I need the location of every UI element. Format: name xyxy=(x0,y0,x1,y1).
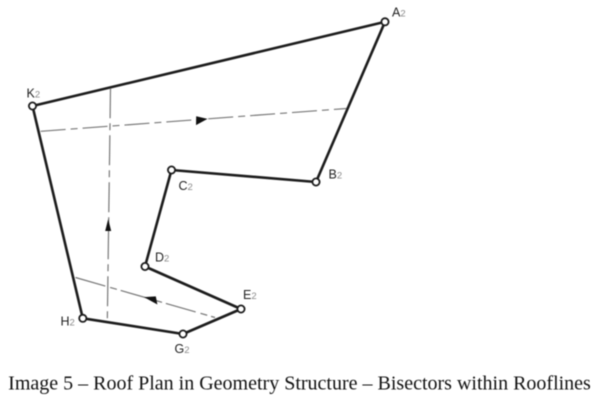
svg-text:D2: D2 xyxy=(155,251,169,265)
svg-text:G2: G2 xyxy=(175,342,190,356)
svg-text:Image 5 – Roof Plan in Geometr: Image 5 – Roof Plan in Geometry Structur… xyxy=(8,373,591,395)
svg-text:H2: H2 xyxy=(61,315,75,329)
svg-text:K2: K2 xyxy=(27,87,41,101)
svg-text:A2: A2 xyxy=(392,6,406,20)
svg-text:B2: B2 xyxy=(329,168,343,182)
svg-text:E2: E2 xyxy=(243,288,257,302)
svg-text:C2: C2 xyxy=(179,179,193,193)
